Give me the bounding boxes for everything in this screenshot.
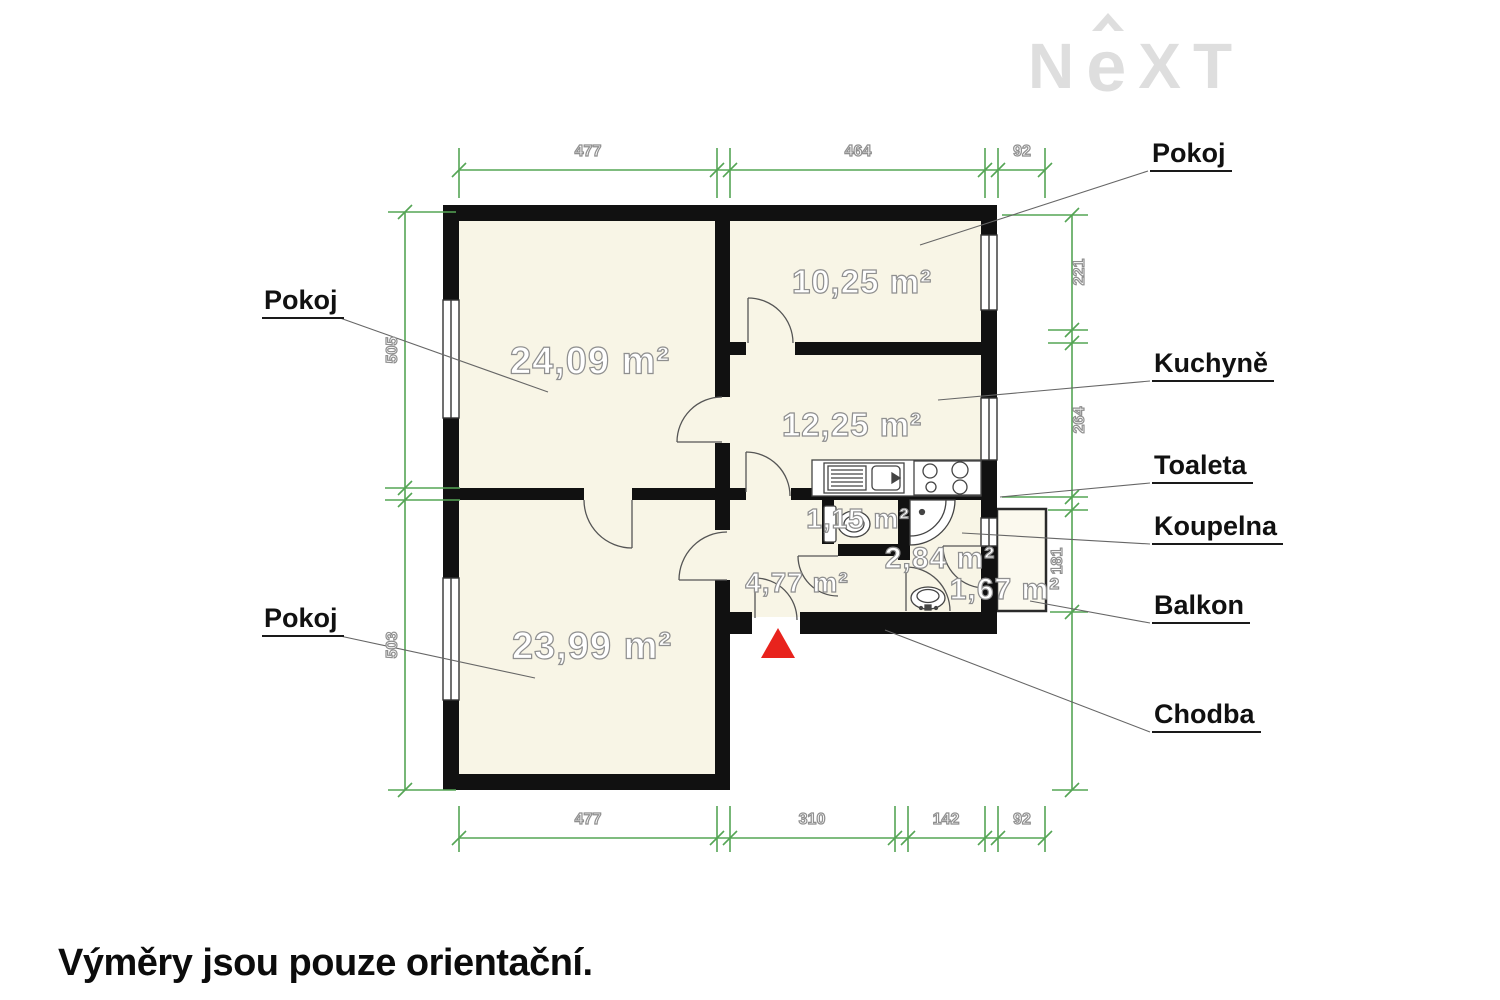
area-pokoj-top-left: 24,09 m² (510, 341, 670, 384)
dim-left-505: 505 (384, 337, 402, 364)
label-toaleta: Toaleta (1152, 451, 1253, 484)
label-kuchyne: Kuchyně (1152, 349, 1274, 382)
window-right-top (981, 235, 997, 310)
window-left-bottom (443, 578, 459, 700)
logo-caret-inner-icon (1098, 23, 1118, 35)
dim-left-503: 503 (384, 632, 402, 659)
area-chodba: 4,77 m² (745, 567, 849, 599)
area-koupelna: 2,84 m² (885, 542, 995, 576)
dim-bottom-142: 142 (933, 811, 960, 829)
dim-top-464: 464 (845, 143, 872, 161)
area-pokoj-top-right: 10,25 m² (792, 263, 932, 301)
label-koupelna: Koupelna (1152, 512, 1283, 545)
dim-bottom-310: 310 (799, 811, 826, 829)
area-toaleta: 1,15 m² (806, 503, 910, 535)
label-pokoj-left-top: Pokoj (262, 286, 344, 319)
entrance-arrow (761, 628, 795, 658)
window-right-kitchen (981, 398, 997, 460)
dim-right-221: 221 (1071, 259, 1089, 286)
logo-letter-n: N (1028, 38, 1078, 96)
dim-bottom-477: 477 (575, 811, 602, 829)
area-balkon: 1,67 m² (950, 573, 1060, 607)
label-pokoj-right: Pokoj (1150, 139, 1232, 172)
label-chodba: Chodba (1152, 700, 1261, 733)
disclaimer-text: Výměry jsou pouze orientační. (58, 942, 593, 985)
dim-right-181: 181 (1049, 548, 1067, 575)
logo-letter-t: T (1193, 38, 1236, 96)
dim-top-92: 92 (1013, 143, 1031, 161)
logo-letter-x: X (1138, 38, 1185, 96)
stove (914, 461, 981, 495)
floor-plan-drawing (0, 0, 1500, 1000)
dim-top-477: 477 (575, 143, 602, 161)
dim-right-264: 264 (1071, 407, 1089, 434)
label-balkon: Balkon (1152, 591, 1250, 624)
label-pokoj-left-bottom: Pokoj (262, 604, 344, 637)
bathroom-sink (911, 587, 945, 610)
kitchen-counter (812, 460, 981, 496)
floorplan-page: N e X T 24,09 m² 10,25 m² 12,25 m² 23,99… (0, 0, 1500, 1000)
area-pokoj-bottom-left: 23,99 m² (512, 626, 672, 669)
area-kuchyne: 12,25 m² (782, 406, 922, 444)
dim-bottom-92: 92 (1013, 811, 1031, 829)
next-logo: N e X T (1028, 38, 1236, 96)
logo-letter-e: e (1086, 39, 1130, 95)
